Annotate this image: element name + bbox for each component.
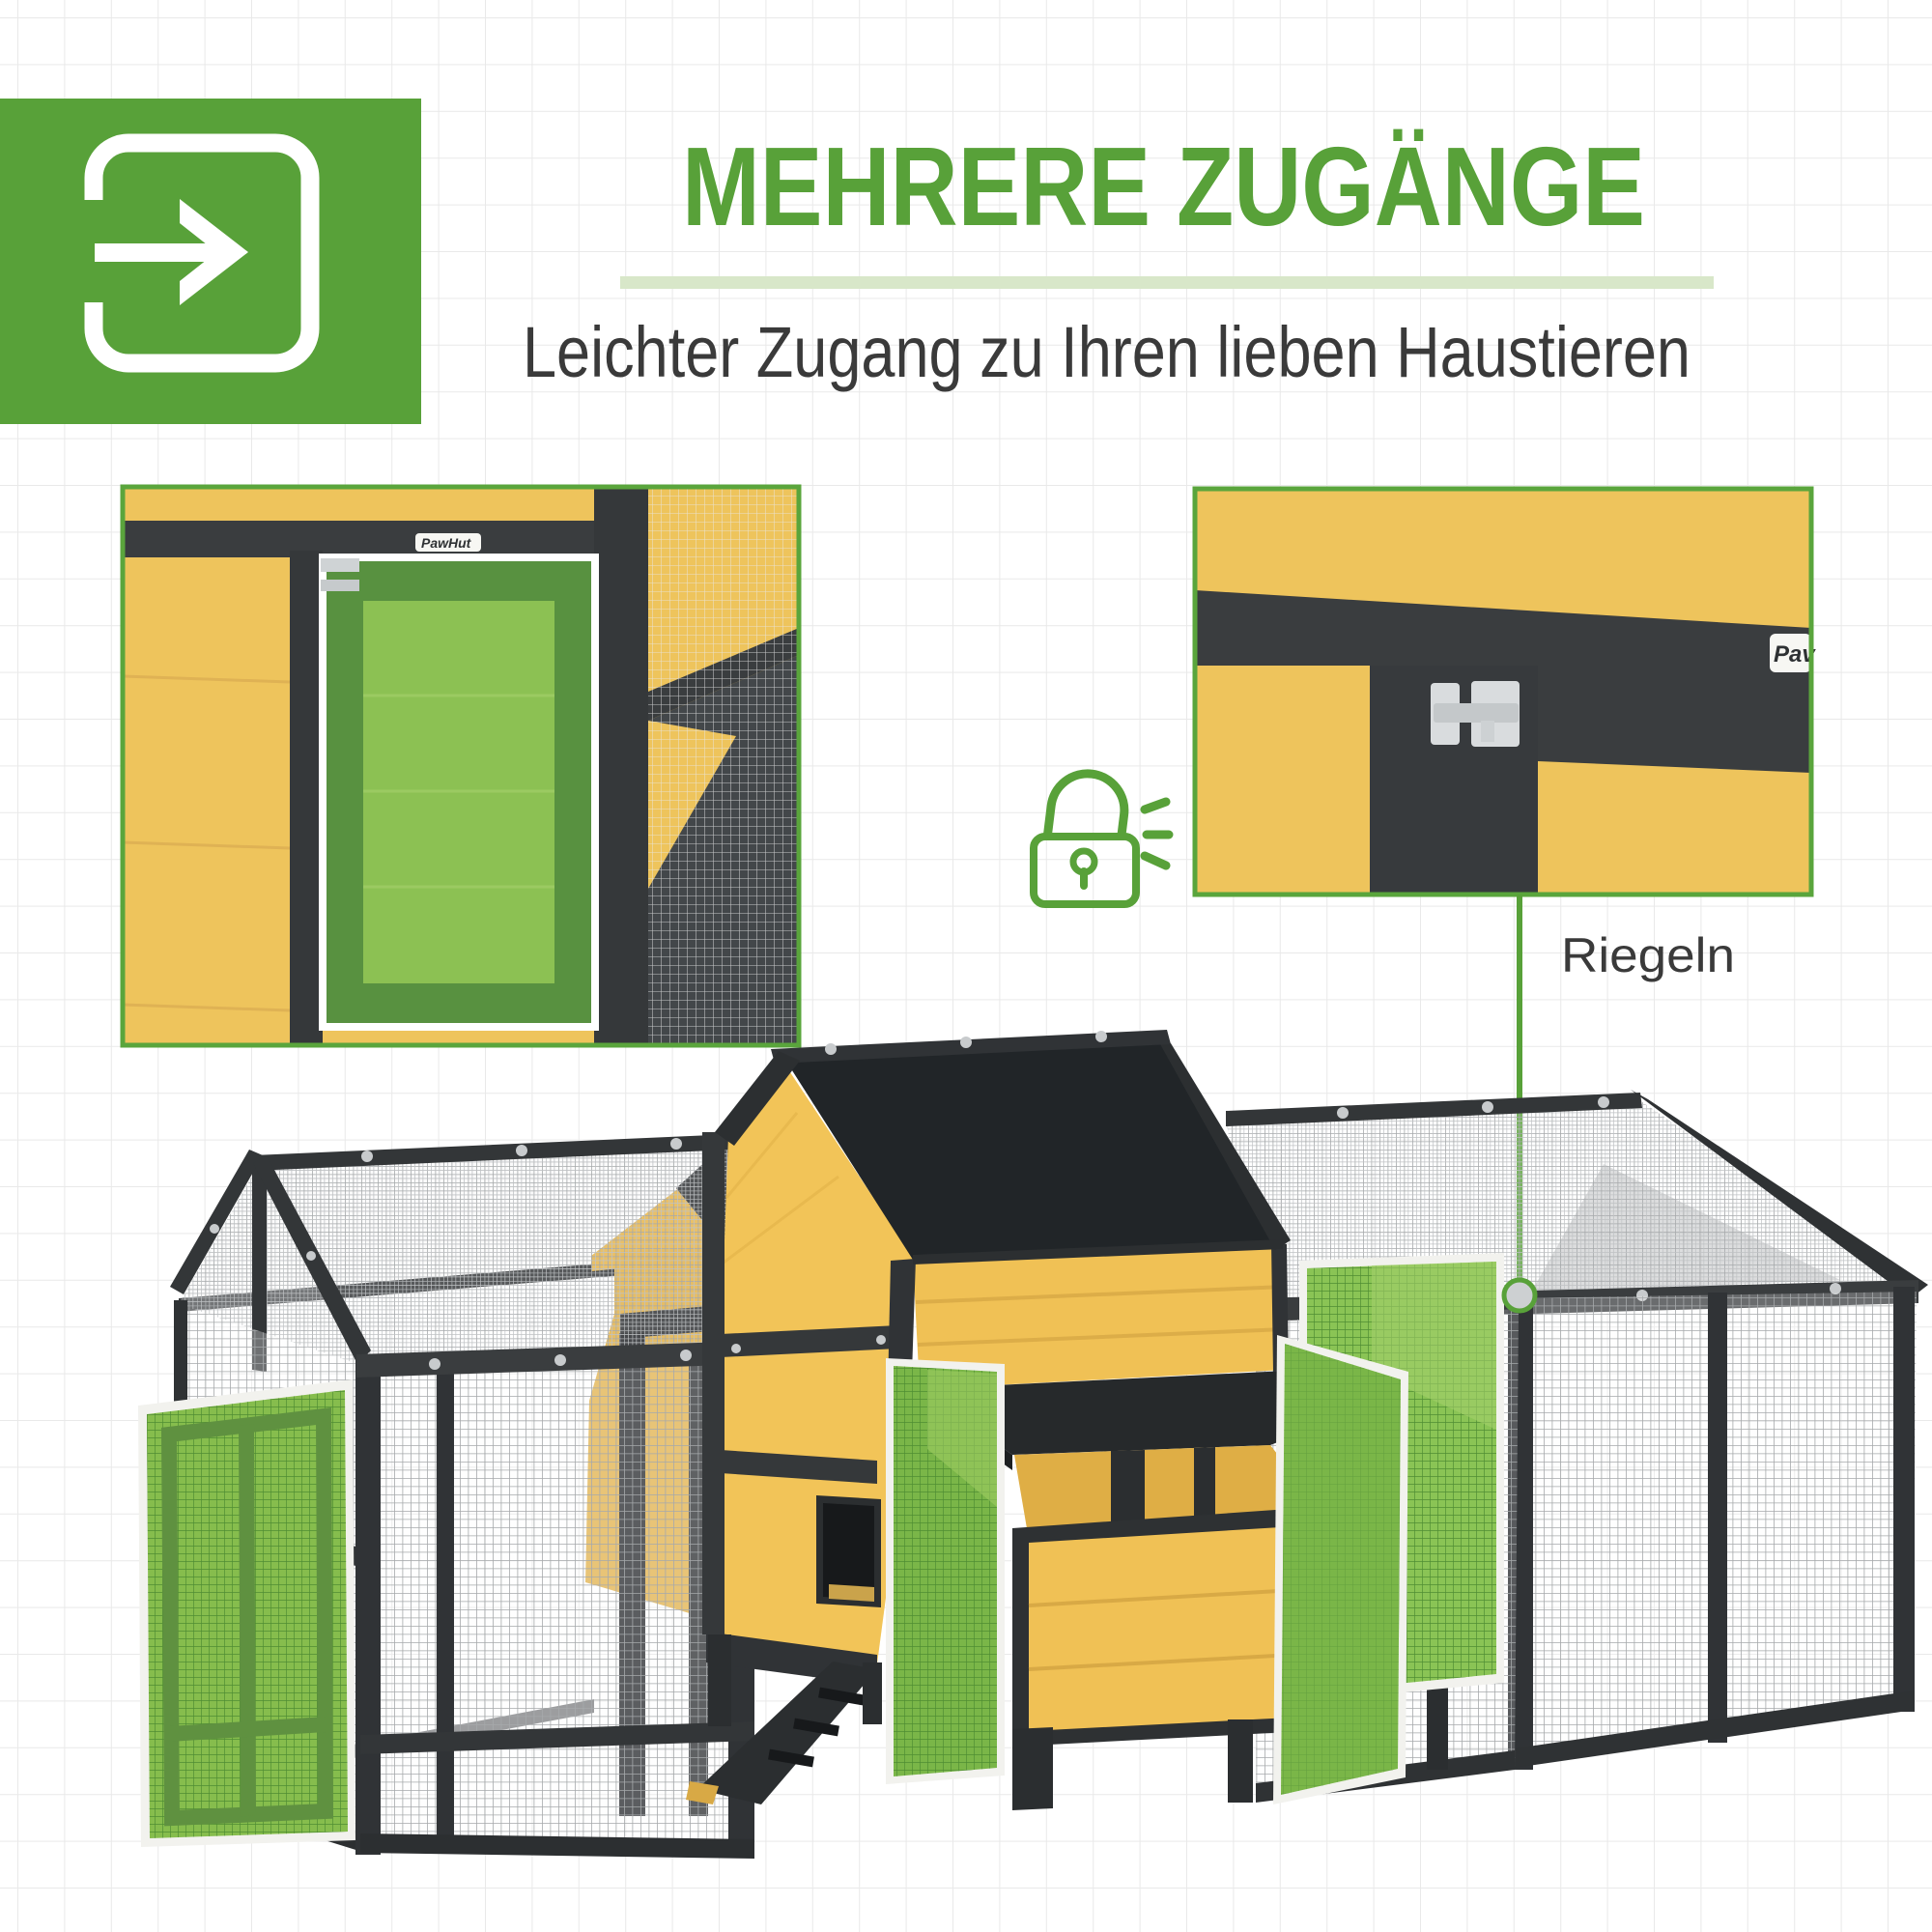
svg-text:Leichter Zugang zu Ihren liebe: Leichter Zugang zu Ihren lieben Haustier… (523, 312, 1690, 392)
svg-text:PawHut: PawHut (421, 535, 472, 551)
svg-text:MEHRERE ZUGÄNGE: MEHRERE ZUGÄNGE (682, 124, 1645, 249)
svg-text:Riegeln: Riegeln (1561, 928, 1735, 982)
